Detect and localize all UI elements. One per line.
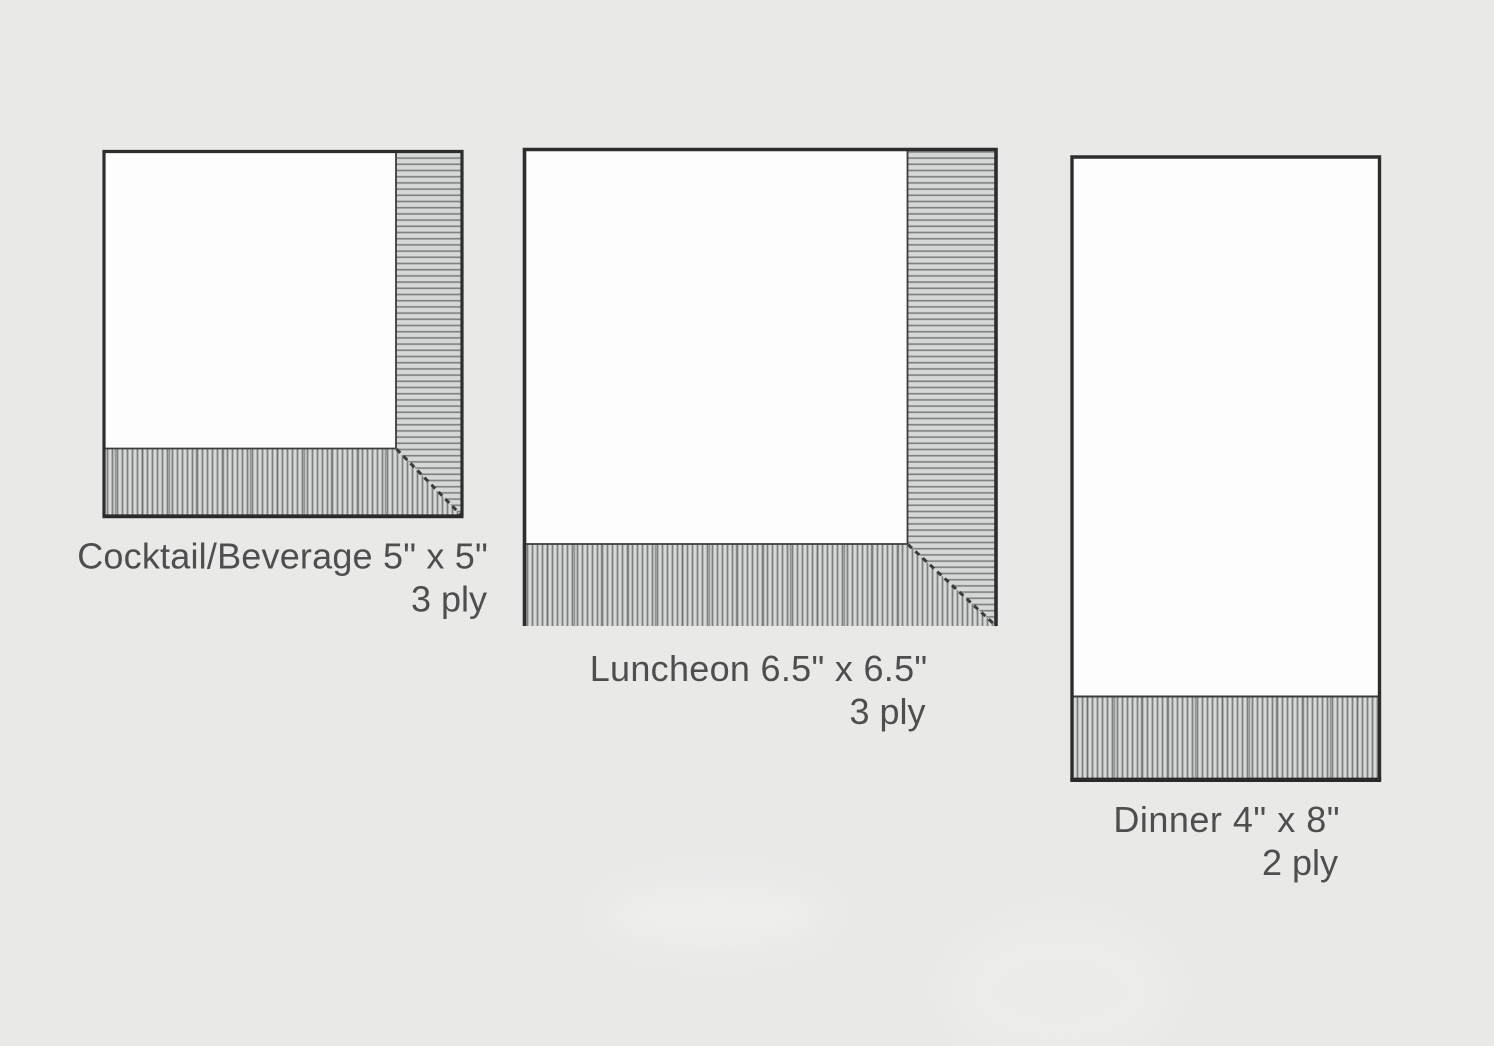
svg-text:3 ply: 3 ply (411, 579, 487, 620)
svg-text:Dinner 4" x 8": Dinner 4" x 8" (1113, 799, 1340, 840)
svg-text:2 ply: 2 ply (1262, 842, 1338, 883)
svg-text:3 ply: 3 ply (849, 691, 925, 732)
svg-text:Luncheon 6.5" x 6.5": Luncheon 6.5" x 6.5" (590, 648, 928, 689)
svg-text:Cocktail/Beverage 5" x 5": Cocktail/Beverage 5" x 5" (77, 536, 488, 577)
